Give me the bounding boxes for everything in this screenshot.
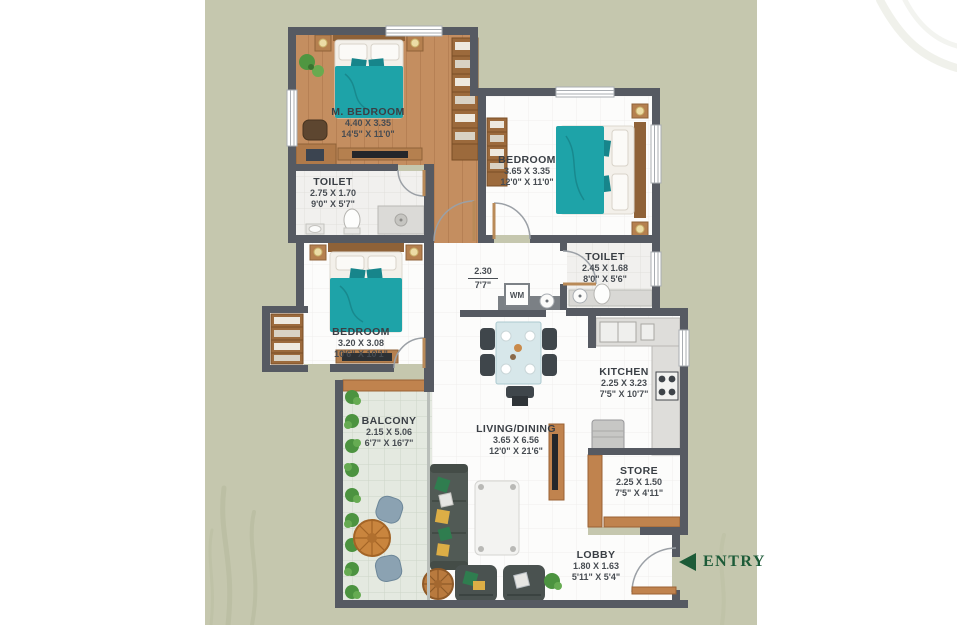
- room-dim-m: 2.25 X 3.23: [599, 378, 648, 389]
- room-dim-ft: 7'5" X 10'7": [599, 389, 648, 400]
- room-name: BALCONY: [362, 415, 417, 427]
- entry-label: ENTRY: [703, 553, 766, 571]
- room-name: TOILET: [310, 176, 356, 188]
- passage-dim-m: 2.30: [468, 266, 498, 277]
- room-dim-ft: 8'0" X 5'6": [582, 274, 628, 285]
- room-dim-m: 2.25 X 1.50: [615, 477, 663, 488]
- passage-dim-divider: [468, 278, 498, 279]
- room-dim-m: 1.80 X 1.63: [572, 561, 620, 572]
- room-name: TOILET: [582, 251, 628, 263]
- label-lobby: LOBBY 1.80 X 1.63 5'11" X 5'4": [572, 549, 620, 582]
- label-store: STORE 2.25 X 1.50 7'5" X 4'11": [615, 465, 663, 498]
- label-toilet-master: TOILET 2.75 X 1.70 9'0" X 5'7": [310, 176, 356, 209]
- coffee-table: [475, 481, 519, 555]
- room-dim-m: 3.20 X 3.08: [332, 338, 390, 349]
- entry-marker: ENTRY: [679, 553, 766, 571]
- sofa: [430, 464, 468, 570]
- room-dim-m: 2.75 X 1.70: [310, 188, 356, 199]
- room-dim-ft: 9'0" X 5'7": [310, 199, 356, 210]
- entry-arrow-icon: [679, 553, 696, 571]
- room-dim-ft: 14'5" X 11'0": [331, 129, 404, 140]
- room-dim-ft: 6'7" X 16'7": [362, 438, 417, 449]
- room-name: M. BEDROOM: [331, 106, 404, 118]
- room-dim-m: 2.45 X 1.68: [582, 263, 628, 274]
- balcony-slider: [427, 392, 430, 600]
- room-dim-m: 3.65 X 3.35: [498, 166, 556, 177]
- floorplan-canvas: M. BEDROOM 4.40 X 3.35 14'5" X 11'0" TOI…: [0, 0, 957, 625]
- balcony-threshold: [343, 380, 431, 391]
- room-dim-ft: 5'11" X 5'4": [572, 572, 620, 583]
- room-dim-ft: 10'6" X 10'1": [332, 349, 390, 360]
- room-dim-ft: 7'5" X 4'11": [615, 488, 663, 499]
- label-passage: 2.30 7'7": [468, 266, 498, 290]
- room-name: STORE: [615, 465, 663, 477]
- passage-dim-ft: 7'7": [468, 280, 498, 291]
- room-name: KITCHEN: [599, 366, 648, 378]
- room-name: LIVING/DINING: [476, 423, 556, 435]
- bedroom3-wardrobe: [271, 314, 303, 364]
- label-toilet-common: TOILET 2.45 X 1.68 8'0" X 5'6": [582, 251, 628, 284]
- room-name: LOBBY: [572, 549, 620, 561]
- master-tv-console: [338, 148, 422, 160]
- room-dim-ft: 12'0" X 11'0": [498, 177, 556, 188]
- room-dim-m: 3.65 X 6.56: [476, 435, 556, 446]
- balcony-plants: [344, 390, 361, 599]
- room-name: BEDROOM: [498, 154, 556, 166]
- washing-machine-box: WM: [504, 283, 530, 307]
- label-m-bedroom: M. BEDROOM 4.40 X 3.35 14'5" X 11'0": [331, 106, 404, 139]
- room-dim-m: 2.15 X 5.06: [362, 427, 417, 438]
- label-balcony: BALCONY 2.15 X 5.06 6'7" X 16'7": [362, 415, 417, 448]
- room-dim-m: 4.40 X 3.35: [331, 118, 404, 129]
- label-bedroom2: BEDROOM 3.65 X 3.35 12'0" X 11'0": [498, 154, 556, 187]
- floorplan-graphic: [0, 0, 957, 625]
- room-dim-ft: 12'0" X 21'6": [476, 446, 556, 457]
- master-corridor-floor: [434, 164, 478, 244]
- label-bedroom3: BEDROOM 3.20 X 3.08 10'6" X 10'1": [332, 326, 390, 359]
- label-living-dining: LIVING/DINING 3.65 X 6.56 12'0" X 21'6": [476, 423, 556, 456]
- label-kitchen: KITCHEN 2.25 X 3.23 7'5" X 10'7": [599, 366, 648, 399]
- room-name: BEDROOM: [332, 326, 390, 338]
